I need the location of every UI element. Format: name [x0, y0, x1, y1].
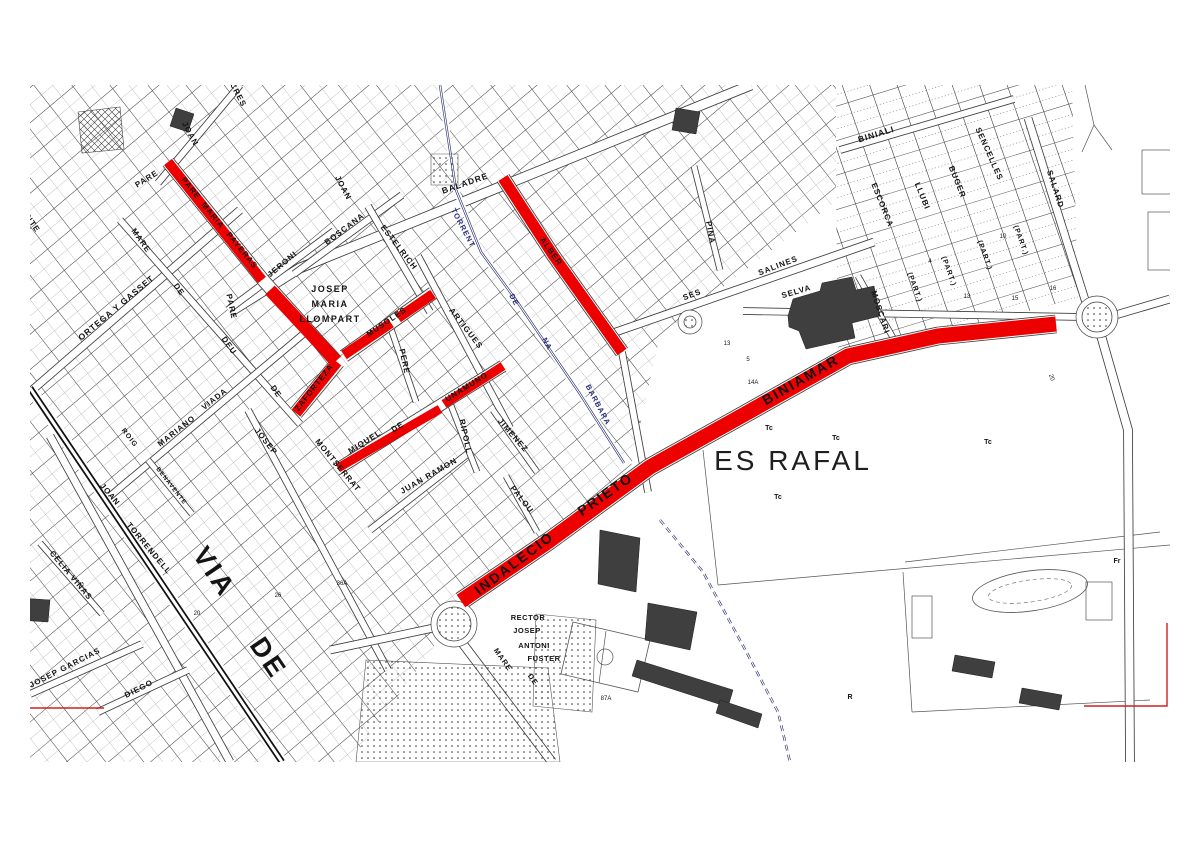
parcel-number: 13 [964, 294, 971, 300]
rector-label: ANTONI [518, 641, 550, 650]
parcel-number: 14A [748, 380, 759, 386]
roundabout [437, 607, 471, 641]
building-footprint [598, 530, 640, 592]
rector-label: FUSTER [528, 654, 561, 663]
plaza-label: MARIA [312, 299, 349, 309]
map-canvas: JOANCRESPAREMAREDEDEUDEVENTEORTEGA Y GAS… [0, 0, 1200, 848]
rector-label: JOSEP [513, 626, 541, 635]
roundabout [684, 316, 696, 328]
map-clip-group: JOANCRESPAREMAREDEDEUDEVENTEORTEGA Y GAS… [0, 0, 1200, 848]
plaza-label: LLOMPART [299, 314, 360, 324]
parcel-number: 15 [1012, 296, 1019, 302]
parcel-number: 36A [337, 581, 348, 587]
street-map: JOANCRESPAREMAREDEDEUDEVENTEORTEGA Y GAS… [0, 0, 1200, 848]
rector-label: RECTOR [511, 613, 546, 622]
map-layers: JOANCRESPAREMAREDEDEUDEVENTEORTEGA Y GAS… [0, 0, 1200, 848]
parcel-number: 26 [275, 593, 282, 599]
parcel-number: 20 [194, 611, 201, 617]
land-use-code: Tc [984, 439, 992, 446]
parcel-number: 10 [1000, 234, 1007, 240]
plaza-label: JOSEP [311, 284, 349, 294]
land-use-code: Tc [774, 494, 782, 501]
land-use-code: Fr [1114, 558, 1121, 565]
stippled-park [533, 614, 596, 712]
parcel-number: 87A [601, 696, 612, 702]
building-footprint [672, 108, 700, 134]
stippled-park [431, 154, 458, 185]
parcel-number: 13 [724, 341, 731, 347]
land-use-code: Tc [765, 425, 773, 432]
building-footprint [18, 598, 50, 622]
land-use-code: R [847, 694, 852, 701]
parcel-number: 16 [1050, 286, 1057, 292]
land-use-code: Tc [832, 435, 840, 442]
hatched-lot [78, 107, 124, 153]
region-label: ES RAFAL [714, 445, 872, 476]
roundabout [1082, 302, 1112, 332]
